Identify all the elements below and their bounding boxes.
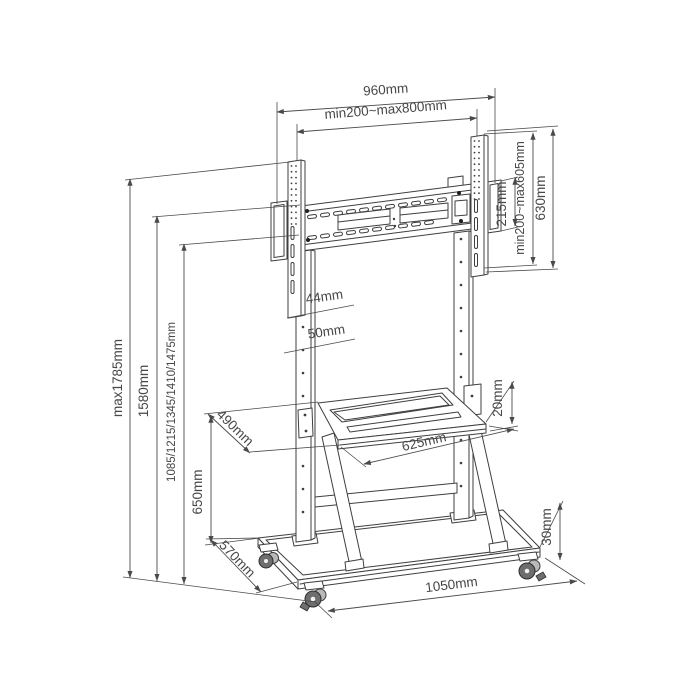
dim-base-thickness: 30mm <box>539 501 585 584</box>
dim-vesa-width: min200~max800mm <box>297 97 477 161</box>
dim-shelf-thickness: 20mm <box>486 379 518 431</box>
dim-label-plate-height: 215mm <box>494 181 509 226</box>
right-column <box>454 231 473 520</box>
tv-stand-diagram: 960mm min200~max800mm 630mm min200~max60… <box>0 0 700 700</box>
dim-label-bracket-height: 630mm <box>533 175 548 220</box>
left-vesa-rail <box>288 160 305 318</box>
dim-label-base-width: 1050mm <box>424 574 478 595</box>
mount-bar <box>301 176 472 251</box>
right-vesa-rail <box>471 135 488 277</box>
dimension-drawing-canvas: 960mm min200~max800mm 630mm min200~max60… <box>0 0 700 700</box>
dim-label-shelf-height: 650mm <box>190 469 205 514</box>
dim-label-height-levels: 1085/1215/1345/1410/1475mm <box>166 322 178 482</box>
stand-structure <box>123 135 546 611</box>
left-spacer-plate <box>271 201 287 261</box>
dim-label-shelf-thickness: 20mm <box>490 379 505 417</box>
caster-front-right <box>518 552 546 581</box>
dim-label-base-depth: 570mm <box>216 537 258 580</box>
floor-line <box>123 577 316 602</box>
dim-hole-gap-large: 50mm <box>284 322 355 353</box>
dim-label-shelf-depth: 490mm <box>214 407 257 449</box>
dim-height-upper: 1580mm <box>136 205 300 581</box>
dim-label-base-thickness: 30mm <box>539 508 554 546</box>
dim-label-height-max: max1785mm <box>110 339 125 417</box>
dim-shelf-depth: 490mm <box>204 402 340 453</box>
shelf-bracket-left <box>298 408 313 438</box>
dim-height-levels: 1085/1215/1345/1410/1475mm <box>166 235 299 584</box>
dim-label-total-width: 960mm <box>363 80 409 98</box>
dim-label-height-upper: 1580mm <box>136 365 151 418</box>
dim-label-vesa-width: min200~max800mm <box>324 97 447 122</box>
